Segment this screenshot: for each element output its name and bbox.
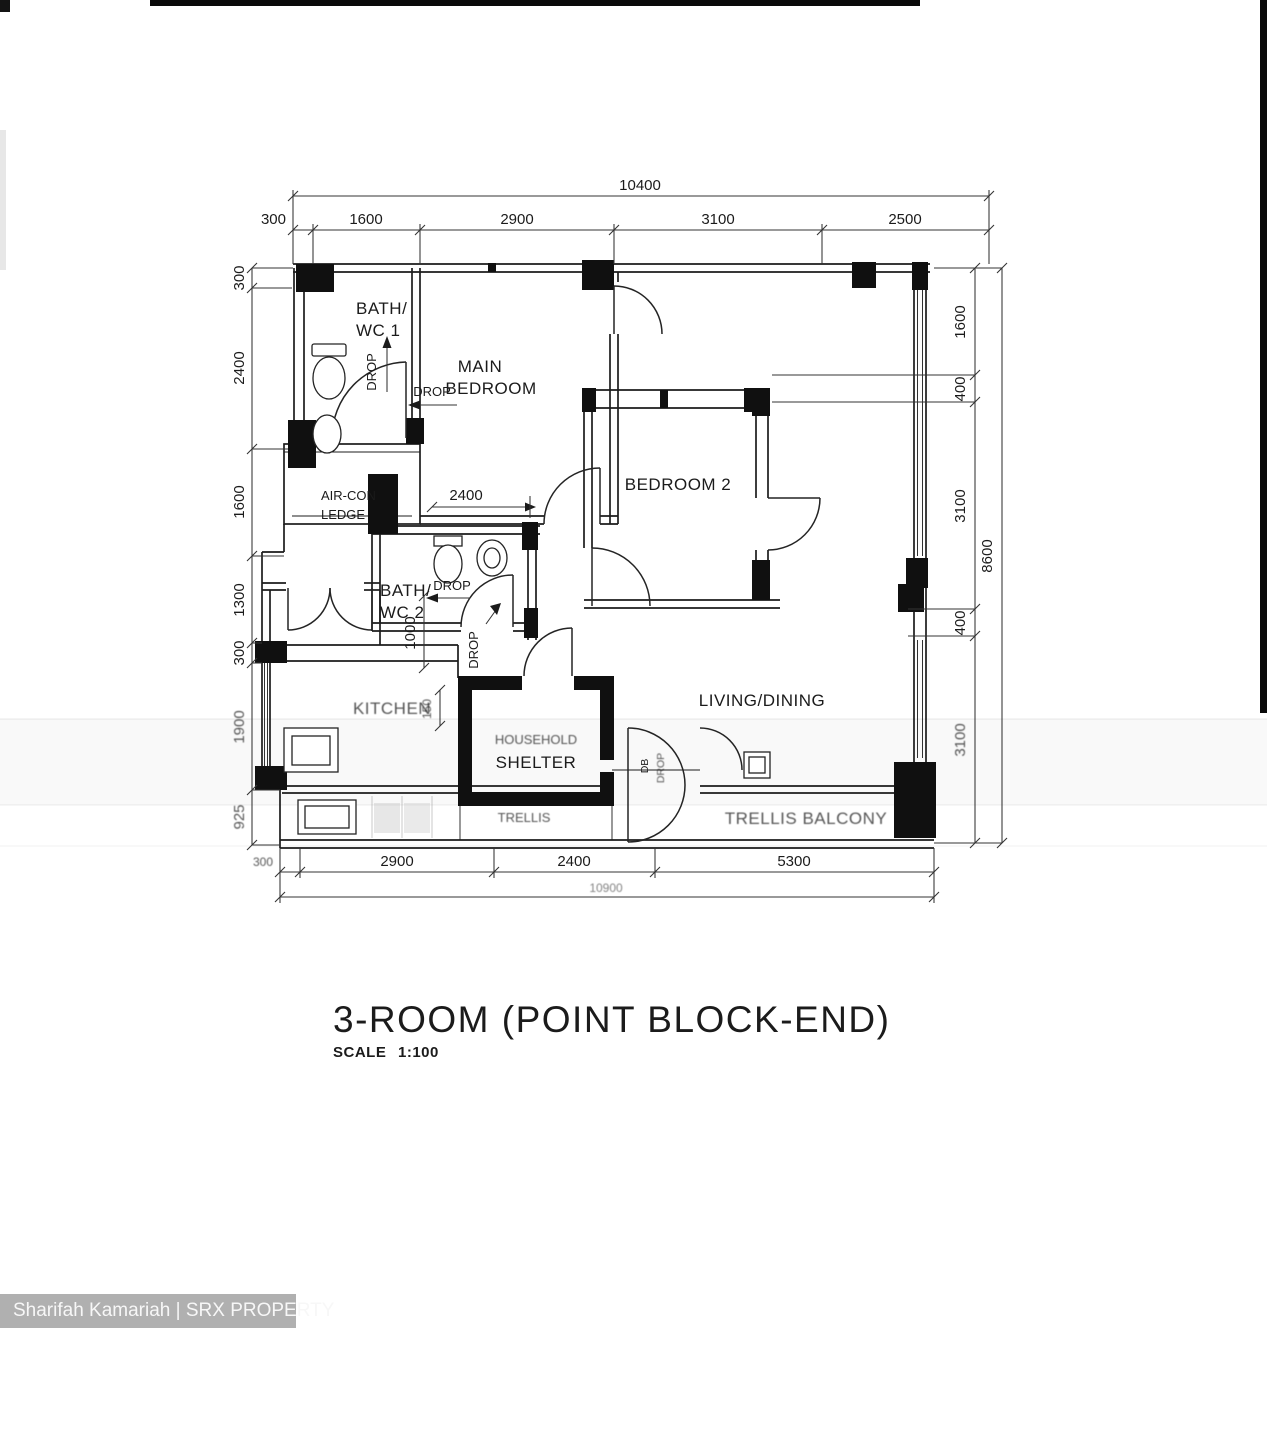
- plan-scale-label: SCALE: [333, 1044, 386, 1061]
- dim-right-400a: 400: [952, 376, 969, 401]
- dim-left-300b: 300: [231, 640, 248, 665]
- label-main-bedroom-line1: MAIN: [458, 357, 503, 376]
- dim-bottom-5300: 5300: [777, 853, 810, 870]
- plan-scale-value: 1:100: [398, 1044, 439, 1061]
- floorplan-drawing: 10400 300 1600 2900 3100 2500 300 2400 1…: [0, 0, 1267, 1440]
- toilet-tank: [312, 344, 346, 356]
- label-trellis: TRELLIS: [498, 810, 551, 825]
- label-bedroom2: BEDROOM 2: [625, 475, 732, 494]
- dim-right-3100b: 3100: [952, 723, 969, 756]
- dim-left-1300: 1300: [231, 583, 248, 616]
- dim-mbr-2400: 2400: [449, 487, 482, 504]
- label-trellis-balcony: TRELLIS BALCONY: [725, 809, 887, 828]
- entrance-door-right-arc: [330, 588, 372, 630]
- label-drop-bath1: DROP: [364, 353, 379, 391]
- label-kitchen: KITCHEN: [353, 699, 431, 718]
- dim-top-1600: 1600: [349, 211, 382, 228]
- dim-left-1600: 1600: [231, 485, 248, 518]
- label-aircon-line1: AIR-CON: [321, 488, 376, 503]
- label-drop-bath2: DROP: [433, 578, 471, 593]
- hall-top-door-arc: [614, 286, 662, 334]
- dim-left-925: 925: [231, 804, 248, 829]
- dim-bottom-2400: 2400: [557, 853, 590, 870]
- dim-left-300a: 300: [231, 265, 248, 290]
- dim-left-1900: 1900: [231, 710, 248, 743]
- title-block: 3-ROOM (POINT BLOCK-END) SCALE 1:100: [333, 999, 890, 1061]
- dim-top-2900: 2900: [500, 211, 533, 228]
- entrance-door-left-arc: [288, 588, 330, 630]
- bedroom2-right-door-arc: [768, 498, 820, 550]
- label-aircon-line2: LEDGE: [321, 507, 365, 522]
- label-db-drop: DROP: [655, 753, 667, 783]
- dim-top-3100: 3100: [701, 211, 734, 228]
- dim-right-3100a: 3100: [952, 489, 969, 522]
- washer: [374, 803, 400, 833]
- label-bath2-line1: BATH/: [380, 581, 431, 600]
- floorplan-page: 10400 300 1600 2900 3100 2500 300 2400 1…: [0, 0, 1267, 1440]
- dim-right-1600: 1600: [952, 305, 969, 338]
- label-drop-mbr: DROP: [413, 384, 451, 399]
- label-living-dining: LIVING/DINING: [699, 691, 825, 710]
- plan-title: 3-ROOM (POINT BLOCK-END): [333, 999, 890, 1040]
- label-bath1-line1: BATH/: [356, 299, 407, 318]
- scan-artifacts: [0, 0, 1267, 846]
- watermark-text: Sharifah Kamariah | SRX PROPERTY: [13, 1300, 334, 1321]
- label-bath1-line2: WC 1: [356, 321, 401, 340]
- dim-bottom-300: 300: [253, 855, 273, 869]
- dim-right-400b: 400: [952, 610, 969, 635]
- label-main-bedroom-line2: BEDROOM: [445, 379, 536, 398]
- label-db: DB: [639, 759, 651, 774]
- dim-top-overall: 10400: [619, 177, 661, 194]
- label-shelter-line2: SHELTER: [496, 753, 577, 772]
- dim-top-2500: 2500: [888, 211, 921, 228]
- dim-top-300: 300: [261, 211, 286, 228]
- dim-bottom-overall: 10900: [589, 881, 623, 895]
- bedroom2-left-door-arc: [592, 548, 650, 606]
- dim-left-2400: 2400: [231, 351, 248, 384]
- label-shelter-line1: HOUSEHOLD: [495, 732, 577, 747]
- dim-bottom-2900: 2900: [380, 853, 413, 870]
- label-drop-hall: DROP: [466, 631, 481, 669]
- toilet-bowl: [313, 357, 345, 399]
- dim-right-overall: 8600: [979, 539, 996, 572]
- label-bath2-line2: WC 2: [380, 603, 425, 622]
- watermark-bar: Sharifah Kamariah | SRX PROPERTY: [0, 1294, 296, 1328]
- toilet-bowl: [313, 415, 341, 453]
